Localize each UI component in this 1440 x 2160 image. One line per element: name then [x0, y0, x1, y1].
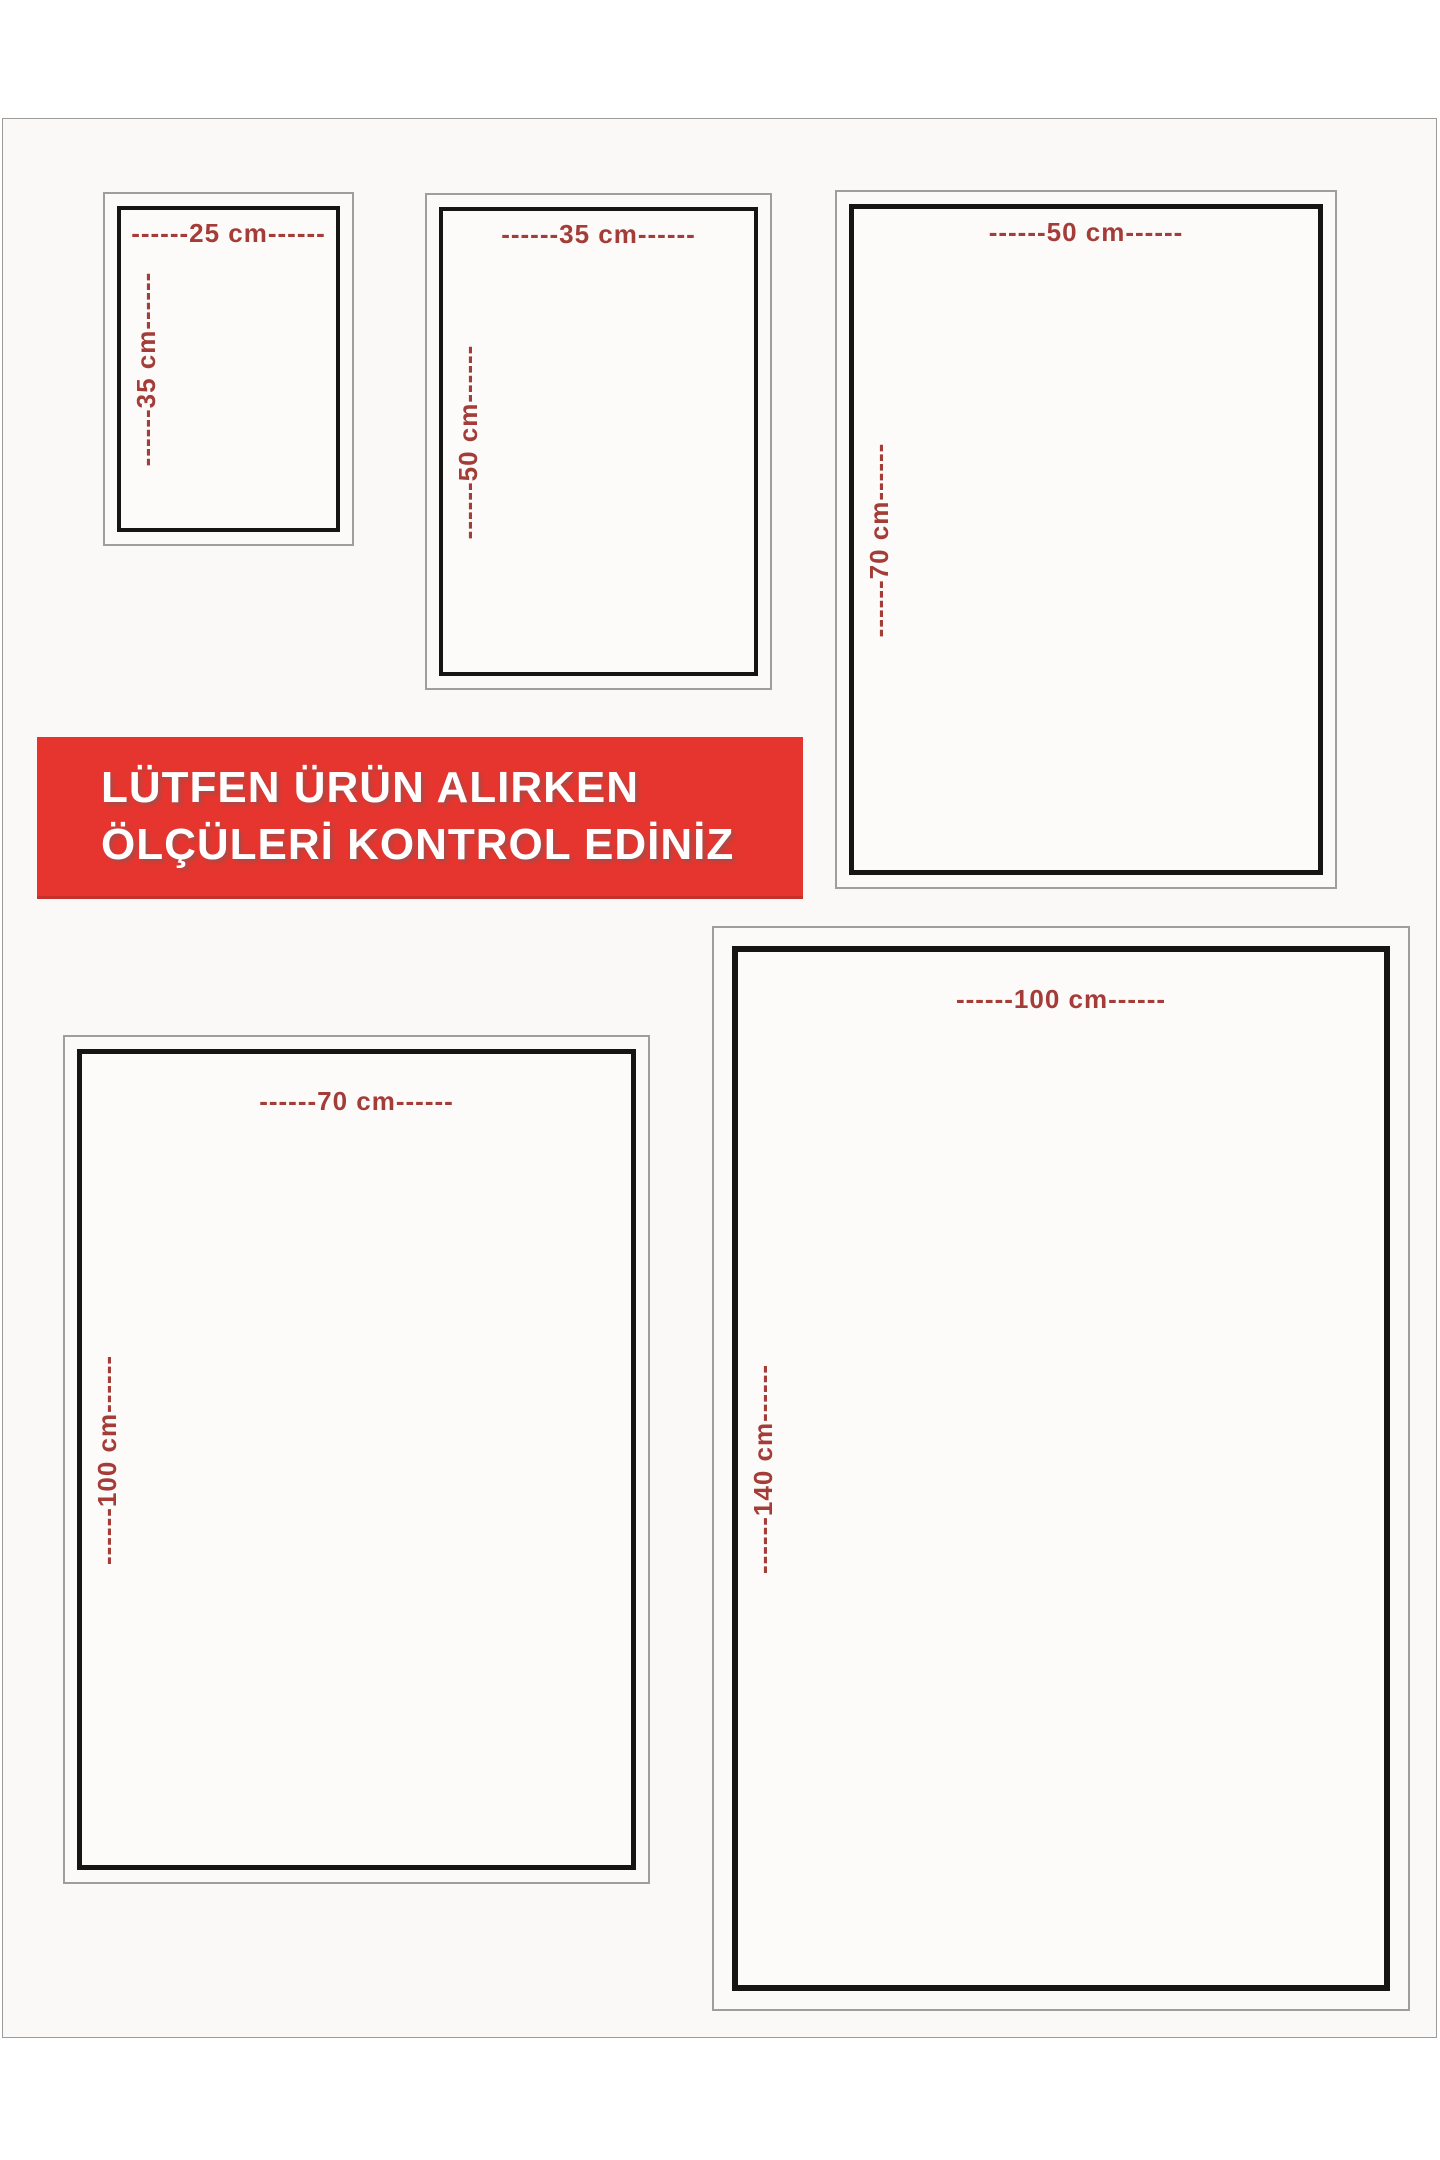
warning-banner-line2: ÖLÇÜLERİ KONTROL EDİNİZ: [101, 821, 803, 869]
size-box-35x50: ------35 cm------ ------50 cm------: [425, 193, 772, 690]
size-box-70x100-outline: ------70 cm------ ------100 cm------: [77, 1049, 636, 1870]
width-label-70cm: ------70 cm------: [82, 1086, 631, 1117]
height-label-70cm: ------70 cm------: [864, 442, 895, 637]
width-label-35cm: ------35 cm------: [443, 219, 754, 250]
size-box-25x35-outline: ------25 cm------ ------35 cm------: [117, 206, 340, 532]
height-label-35cm: ------35 cm------: [131, 272, 162, 467]
height-label-140cm: ------140 cm------: [748, 1363, 779, 1573]
size-box-70x100: ------70 cm------ ------100 cm------: [63, 1035, 650, 1884]
width-label-100cm: ------100 cm------: [738, 984, 1384, 1015]
size-box-100x140-outline: ------100 cm------ ------140 cm------: [732, 946, 1390, 1991]
size-box-100x140: ------100 cm------ ------140 cm------: [712, 926, 1410, 2011]
height-label-100cm: ------100 cm------: [92, 1354, 123, 1564]
size-box-50x70-outline: ------50 cm------ ------70 cm------: [849, 204, 1323, 875]
warning-banner-line1: LÜTFEN ÜRÜN ALIRKEN: [101, 764, 803, 812]
width-label-25cm: ------25 cm------: [121, 218, 336, 249]
width-label-50cm: ------50 cm------: [854, 217, 1318, 248]
size-guide-image: ------25 cm------ ------35 cm------ ----…: [0, 0, 1440, 2160]
size-box-50x70: ------50 cm------ ------70 cm------: [835, 190, 1337, 889]
height-label-50cm: ------50 cm------: [453, 344, 484, 539]
size-box-35x50-outline: ------35 cm------ ------50 cm------: [439, 207, 758, 676]
warning-banner: LÜTFEN ÜRÜN ALIRKEN ÖLÇÜLERİ KONTROL EDİ…: [37, 737, 803, 899]
size-box-25x35: ------25 cm------ ------35 cm------: [103, 192, 354, 546]
